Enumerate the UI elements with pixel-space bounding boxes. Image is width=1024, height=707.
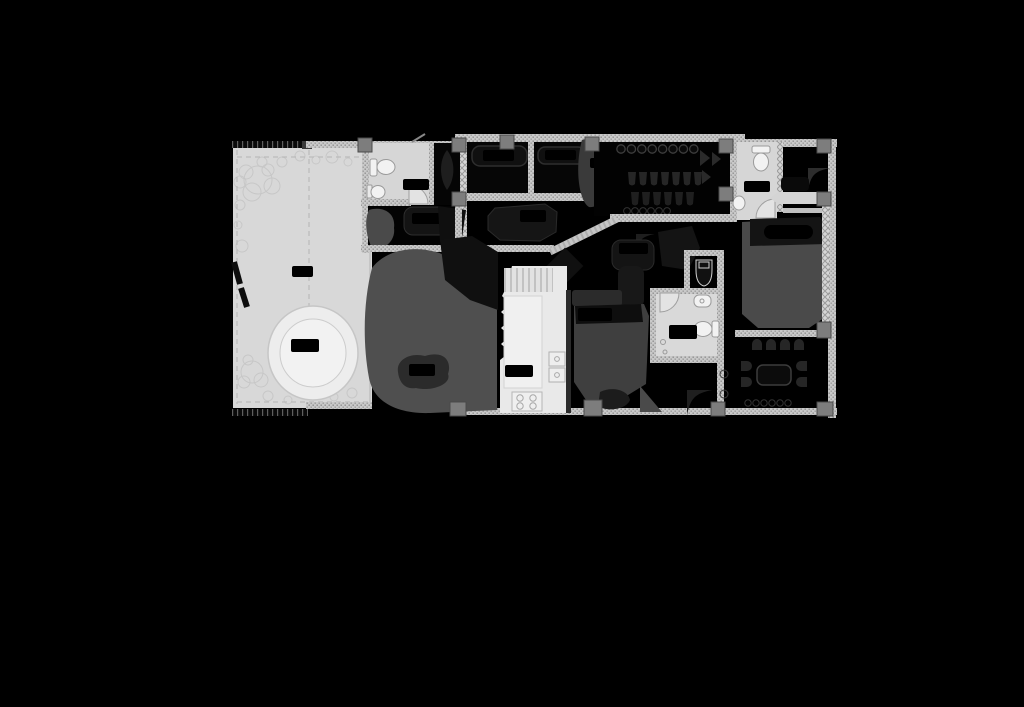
wall [610,214,732,222]
floor-plan-svg [0,0,1024,707]
wall [361,199,411,206]
toilet-icon [696,260,712,286]
room-label-pill [412,213,442,224]
room-label-pill [483,150,514,161]
room-label-pill [292,266,313,277]
screenshot-root [0,0,1024,707]
room-bedroom-right [735,205,835,337]
wall [650,356,724,363]
room-label-pill [669,325,697,339]
room-terrace [232,141,372,416]
room-label-pill [619,243,648,254]
room-kitchen [500,266,571,413]
wall [650,288,656,362]
kitchen-bedroom-divider [566,290,571,413]
wall [467,193,593,201]
sink-icon [367,185,385,199]
room-bedroom-a [467,142,529,194]
room-label-pill [675,372,703,384]
room-walk-in-closet [594,142,732,222]
stair-treads [504,268,553,292]
room-label-pill [520,210,546,222]
room-label-pill [545,150,576,160]
wall [429,143,434,205]
wardrobe-bar [572,290,622,306]
toilet-icon [752,146,770,171]
room-label-pill [409,364,435,376]
dining-table [757,365,791,385]
sofa-corridor [488,204,557,241]
sofa [488,204,557,241]
room-label-pill [291,339,319,352]
plunge-pool [268,306,358,400]
terrace-top-wall [232,141,308,148]
wall [684,250,690,292]
wall-shaft [822,205,829,325]
room-label-pill [764,225,813,239]
wall [528,141,534,194]
sink-icon [733,196,745,210]
sink-icon [694,295,711,307]
room-living [365,236,498,413]
terrace-bottom-wall [232,409,308,416]
room-label-pill [505,365,533,377]
dark-bench [781,177,809,191]
toilet-icon [370,159,395,176]
room-label-pill [744,181,770,192]
room-label-pill [403,179,429,190]
room-bathroom-top-right [730,140,783,222]
stove-icon [512,392,542,411]
toilet-icon [694,321,719,337]
wall [717,250,724,363]
ledge-strip [783,208,828,213]
room-label-pill [578,308,612,321]
